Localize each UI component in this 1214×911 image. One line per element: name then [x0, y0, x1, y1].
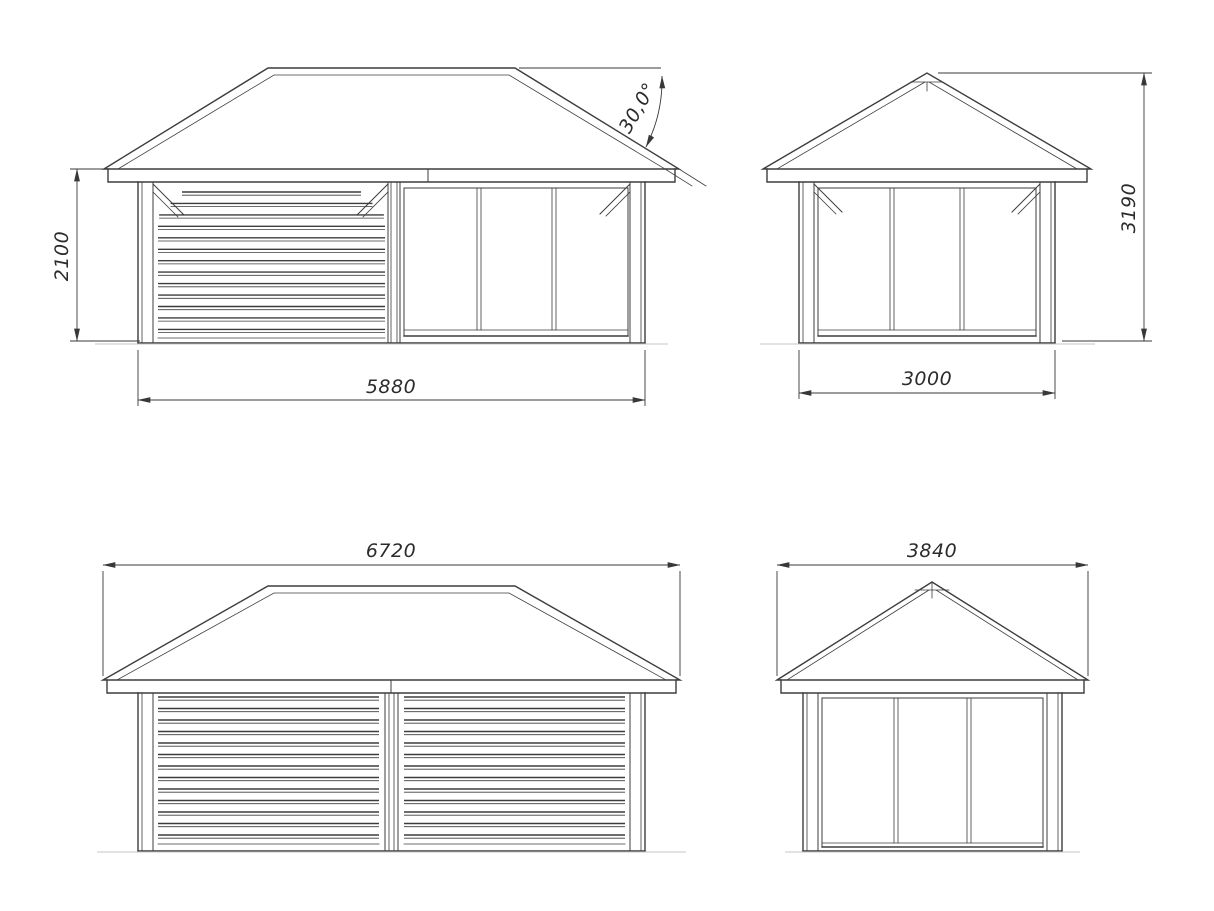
dimension-roof-angle: 30,0° [519, 68, 662, 147]
side2-roof [777, 582, 1088, 693]
dimension-rear-roof-width: 6720 [103, 540, 680, 676]
right-side-elevation-view [760, 73, 1095, 344]
front-glass-wall [404, 188, 628, 336]
dimension-side-width: 3000 [799, 350, 1055, 399]
rear-roof-width-dim-label: 6720 [366, 540, 416, 562]
rear-slat-wall-right [404, 697, 625, 844]
dimension-front-height: 2100 [51, 169, 140, 341]
rear-roof [103, 586, 680, 693]
dimension-side-height: 3190 [938, 73, 1152, 341]
left-side-elevation-view [777, 582, 1088, 852]
side-glass-wall [818, 188, 1036, 336]
technical-drawing-sheet: 2100 5880 30,0° 3000 3190 6720 3840 [0, 0, 1214, 911]
side2-glass-wall [822, 698, 1043, 847]
front-slat-wall [158, 192, 385, 338]
side2-walls [803, 693, 1062, 851]
rear-elevation-view [97, 586, 686, 852]
side-width-dim-label: 3000 [902, 368, 952, 390]
rear-slat-wall-left [158, 697, 379, 844]
front-knee-braces [153, 184, 630, 217]
front-walls [138, 182, 645, 343]
side2-roof-width-dim-label: 3840 [907, 540, 957, 562]
front-width-dim-label: 5880 [366, 376, 416, 398]
side-walls [799, 182, 1055, 343]
dimension-side2-roof-width: 3840 [777, 540, 1088, 676]
side-roof [763, 73, 1091, 182]
pavilion-elevation-drawing: 2100 5880 30,0° 3000 3190 6720 3840 [0, 0, 1214, 911]
rear-walls [138, 693, 645, 851]
front-height-dim-label: 2100 [51, 231, 73, 281]
front-elevation-view [95, 68, 706, 344]
dimension-front-width: 5880 [138, 350, 645, 406]
side-height-dim-label: 3190 [1118, 183, 1140, 233]
